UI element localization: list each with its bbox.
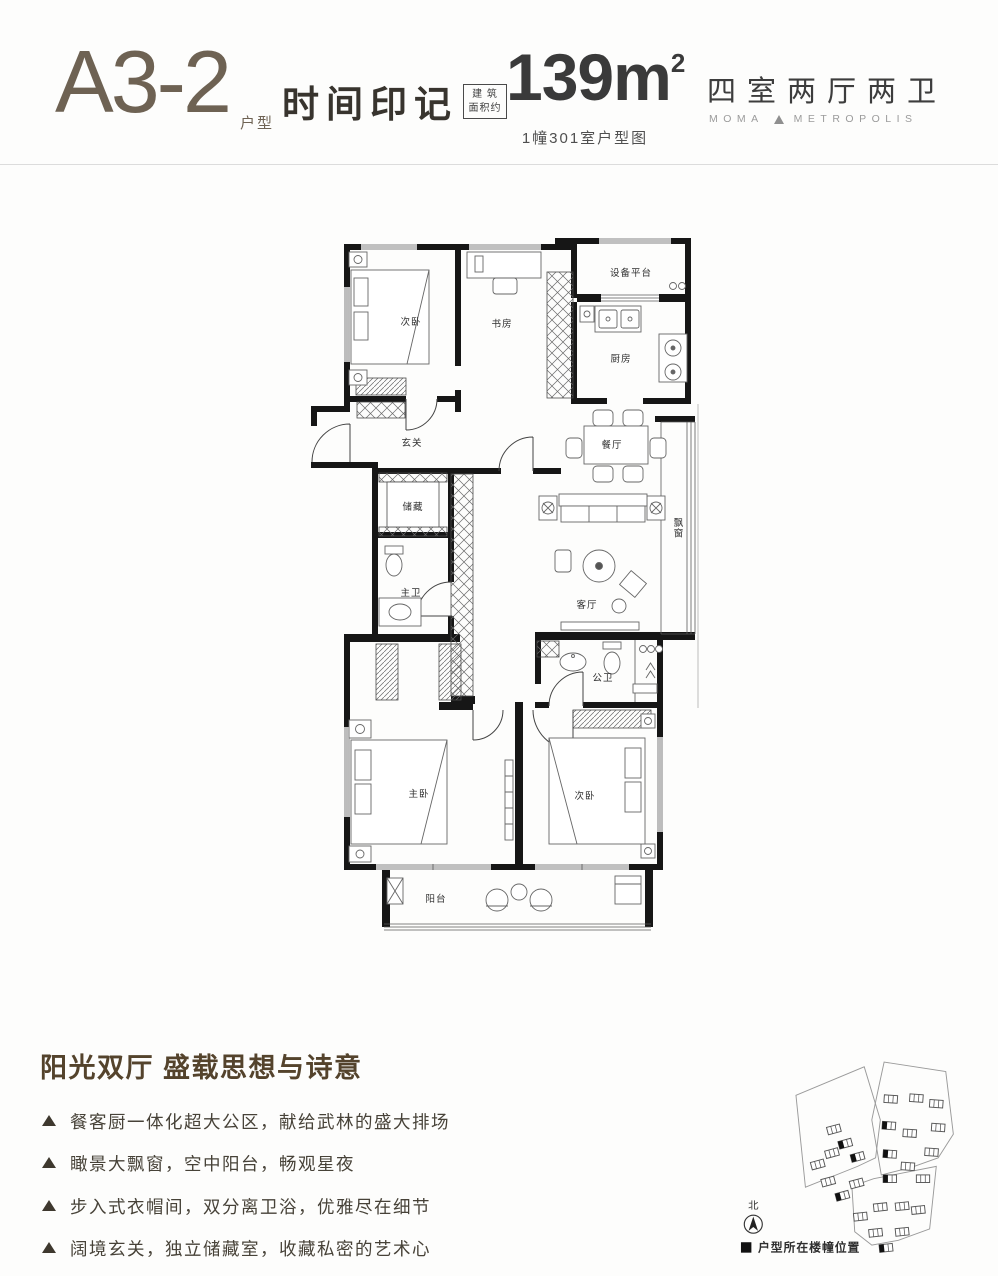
triangle-bullet-icon <box>42 1200 56 1211</box>
unit-code: A3-2 <box>55 36 229 128</box>
series-name: 时间印记 <box>282 74 458 128</box>
toilet-icon <box>379 546 421 626</box>
feature-item: 餐客厨一体化超大公区，献给武林的盛大排场 <box>40 1113 690 1132</box>
area-superscript: 2 <box>671 48 684 78</box>
room-label-study: 书房 <box>491 318 512 330</box>
brand-logo-icon <box>774 115 784 124</box>
north-label: 北 <box>748 1200 759 1212</box>
room-label-dining: 餐厅 <box>601 439 622 451</box>
area-label-box: 建 筑 面积约 <box>463 84 507 119</box>
site-legend: 户型所在楼幢位置 <box>741 1241 860 1255</box>
room-label-public-bath: 公卫 <box>592 673 613 684</box>
north-compass-icon: 北 <box>744 1200 762 1233</box>
room-label-bedroom-bottom: 次卧 <box>574 790 595 802</box>
legend-square-icon <box>741 1242 751 1252</box>
area-box-line2: 面积约 <box>466 102 504 116</box>
room-label-foyer: 玄关 <box>401 437 422 449</box>
header: A3-2 户型 时间印记 建 筑 面积约 139m2 1幢301室户型图 四室两… <box>0 0 998 165</box>
brand-row: MOMA METROPOLIS <box>709 113 918 125</box>
public-bath-fixtures <box>560 640 663 702</box>
brand-left: MOMA <box>709 113 764 125</box>
desk-icon <box>467 252 541 294</box>
triangle-bullet-icon <box>42 1115 56 1126</box>
sofa-icon <box>539 494 665 522</box>
floorplan-svg: 次卧 书房 设备平台 厨房 玄关 餐厅 储藏 主卫 客厅 飘窗 公卫 主卧 次卧… <box>299 232 699 952</box>
master-bed-icon <box>349 720 447 862</box>
second-bed-icon <box>549 714 655 858</box>
feature-item: 瞰景大飘窗，空中阳台，畅观星夜 <box>40 1155 690 1174</box>
stove-icon <box>659 334 687 382</box>
area-value: 139m2 <box>506 44 684 110</box>
room-label-equipment: 设备平台 <box>610 267 652 279</box>
unit-code-suffix: 户型 <box>240 112 274 133</box>
site-buildings <box>810 1094 945 1253</box>
room-label-bedroom-top: 次卧 <box>400 316 421 328</box>
triangle-bullet-icon <box>42 1242 56 1253</box>
room-label-master-bath: 主卫 <box>400 587 421 599</box>
feature-item: 阔境玄关，独立储藏室，收藏私密的艺术心 <box>40 1240 690 1259</box>
room-label-storage: 储藏 <box>402 501 423 513</box>
tv-console-icon <box>561 622 639 630</box>
hall-panel <box>505 760 513 840</box>
room-label-kitchen: 厨房 <box>610 353 631 365</box>
layout-type: 四室两厅两卫 <box>707 68 947 110</box>
features-title: 阳光双厅 盛载思想与诗意 <box>40 1046 690 1085</box>
triangle-bullet-icon <box>42 1157 56 1168</box>
siteplan: 北 户型所在楼幢位置 <box>722 1042 978 1273</box>
area-box-line1: 建 筑 <box>466 88 504 102</box>
unit-note: 1幢301室户型图 <box>500 127 670 148</box>
features-section: 阳光双厅 盛载思想与诗意 餐客厨一体化超大公区，献给武林的盛大排场 瞰景大飘窗，… <box>40 1046 690 1259</box>
features-list: 餐客厨一体化超大公区，献给武林的盛大排场 瞰景大飘窗，空中阳台，畅观星夜 步入式… <box>40 1113 690 1259</box>
room-label-master-bedroom: 主卧 <box>408 788 429 800</box>
brand-right: METROPOLIS <box>794 113 918 125</box>
siteplan-svg: 北 户型所在楼幢位置 <box>722 1042 978 1268</box>
room-label-bay-window: 飘窗 <box>672 518 684 539</box>
feature-item: 步入式衣帽间，双分离卫浴，优雅尽在细节 <box>40 1198 690 1217</box>
floorplan: 次卧 书房 设备平台 厨房 玄关 餐厅 储藏 主卫 客厅 飘窗 公卫 主卧 次卧… <box>299 232 699 957</box>
legend-label: 户型所在楼幢位置 <box>758 1241 860 1255</box>
kitchen-sink-icon <box>580 306 641 332</box>
room-label-balcony: 阳台 <box>425 893 446 905</box>
room-label-living: 客厅 <box>576 599 597 611</box>
